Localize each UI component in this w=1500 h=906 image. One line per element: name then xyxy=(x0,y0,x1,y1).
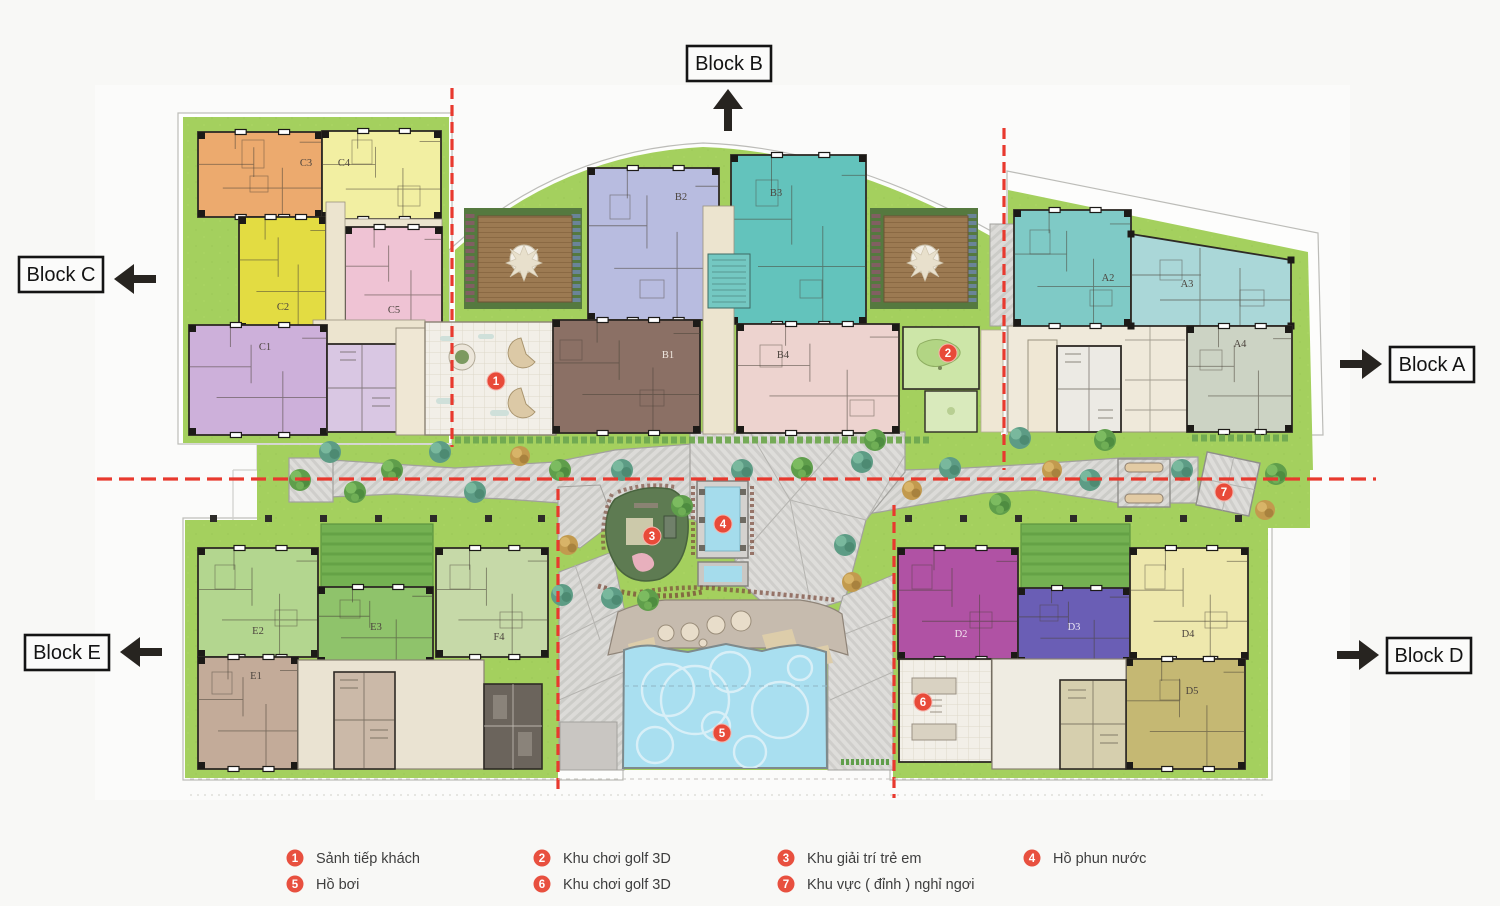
svg-text:B2: B2 xyxy=(675,192,687,203)
svg-text:Hồ bơi: Hồ bơi xyxy=(316,877,359,893)
svg-text:4: 4 xyxy=(1029,853,1036,865)
svg-text:Hồ phun nước: Hồ phun nước xyxy=(1053,851,1146,867)
svg-text:5: 5 xyxy=(719,728,726,740)
svg-text:7: 7 xyxy=(1221,487,1227,499)
svg-text:B3: B3 xyxy=(770,188,782,199)
svg-text:Block B: Block B xyxy=(695,53,763,75)
svg-text:7: 7 xyxy=(783,879,789,891)
svg-text:A3: A3 xyxy=(1181,279,1194,290)
svg-text:D4: D4 xyxy=(1182,629,1196,640)
svg-text:E3: E3 xyxy=(370,622,382,633)
svg-text:C5: C5 xyxy=(388,305,400,316)
svg-text:3: 3 xyxy=(649,531,655,543)
svg-text:Block E: Block E xyxy=(33,642,101,664)
svg-text:C1: C1 xyxy=(259,342,271,353)
svg-text:Khu giải trí trẻ em: Khu giải trí trẻ em xyxy=(807,851,921,867)
svg-text:2: 2 xyxy=(539,853,545,865)
svg-text:6: 6 xyxy=(920,697,926,709)
svg-text:1: 1 xyxy=(292,853,299,865)
svg-text:Block A: Block A xyxy=(1399,354,1466,376)
svg-text:E2: E2 xyxy=(252,626,264,637)
svg-text:5: 5 xyxy=(292,879,299,891)
svg-text:3: 3 xyxy=(783,853,789,865)
svg-text:Khu vực ( đỉnh ) nghỉ ngơi: Khu vực ( đỉnh ) nghỉ ngơi xyxy=(807,877,975,893)
svg-text:A2: A2 xyxy=(1102,273,1115,284)
svg-text:C3: C3 xyxy=(300,158,312,169)
svg-text:E1: E1 xyxy=(250,671,262,682)
svg-text:Block D: Block D xyxy=(1395,645,1464,667)
svg-text:F4: F4 xyxy=(493,632,505,643)
svg-text:C2: C2 xyxy=(277,302,289,313)
svg-text:B4: B4 xyxy=(777,350,790,361)
svg-text:B1: B1 xyxy=(662,350,674,361)
svg-text:D5: D5 xyxy=(1186,686,1199,697)
svg-text:D3: D3 xyxy=(1068,622,1081,633)
svg-text:Khu chơi golf 3D: Khu chơi golf 3D xyxy=(563,851,671,867)
svg-text:4: 4 xyxy=(720,519,727,531)
svg-text:2: 2 xyxy=(945,348,951,360)
svg-text:C4: C4 xyxy=(338,158,351,169)
svg-text:Khu chơi golf 3D: Khu chơi golf 3D xyxy=(563,877,671,893)
svg-text:A4: A4 xyxy=(1234,339,1248,350)
svg-text:Block C: Block C xyxy=(27,264,96,286)
svg-text:Sảnh tiếp khách: Sảnh tiếp khách xyxy=(316,851,420,867)
svg-text:6: 6 xyxy=(539,879,545,891)
svg-text:1: 1 xyxy=(493,376,500,388)
svg-text:D2: D2 xyxy=(955,629,968,640)
